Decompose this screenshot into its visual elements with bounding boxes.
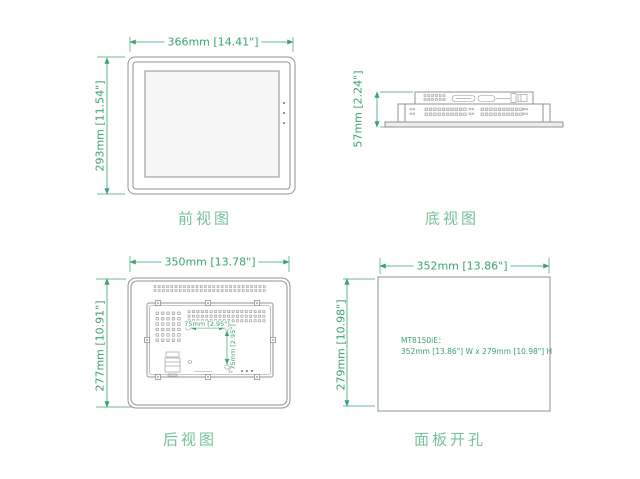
cutout-model-label: MT8150iE： bbox=[401, 337, 445, 345]
bottom-rear-housing bbox=[415, 92, 533, 104]
rear-view-caption: 后视图 bbox=[163, 433, 217, 448]
cutout-width-dimension: 352mm [13.86"] bbox=[413, 261, 510, 272]
front-height-dimension: 293mm [11.54"] bbox=[95, 77, 106, 174]
cutout-view-caption: 面板开孔 bbox=[414, 433, 486, 448]
rear-view-drawing bbox=[96, 256, 290, 408]
cutout-view-drawing bbox=[343, 258, 550, 411]
bottom-view-drawing bbox=[377, 92, 563, 127]
front-view-drawing bbox=[97, 37, 295, 194]
front-width-dimension: 366mm [14.41"] bbox=[164, 37, 261, 48]
vesa-width-dimension: 75mm [2.95"] bbox=[183, 321, 231, 328]
cutout-size-note: 352mm [13.86"] W x 279mm [10.98"] H bbox=[401, 348, 552, 356]
front-view-caption: 前视图 bbox=[178, 212, 232, 227]
cutout-height-dimension: 279mm [10.98"] bbox=[336, 296, 347, 393]
drawing-linework bbox=[0, 0, 640, 479]
dimension-drawing-sheet: 366mm [14.41"] 293mm [11.54"] 前视图 57mm [… bbox=[0, 0, 640, 479]
rear-width-dimension: 350mm [13.78"] bbox=[161, 257, 258, 268]
bottom-depth-dimension: 57mm [2.24"] bbox=[353, 67, 364, 150]
vesa-height-dimension: 75mm [2.95"] bbox=[230, 323, 237, 371]
bottom-view-caption: 底视图 bbox=[425, 212, 479, 227]
bottom-front-bezel-edge bbox=[385, 122, 563, 127]
rear-height-dimension: 277mm [10.91"] bbox=[95, 297, 106, 394]
front-screen bbox=[145, 71, 279, 177]
